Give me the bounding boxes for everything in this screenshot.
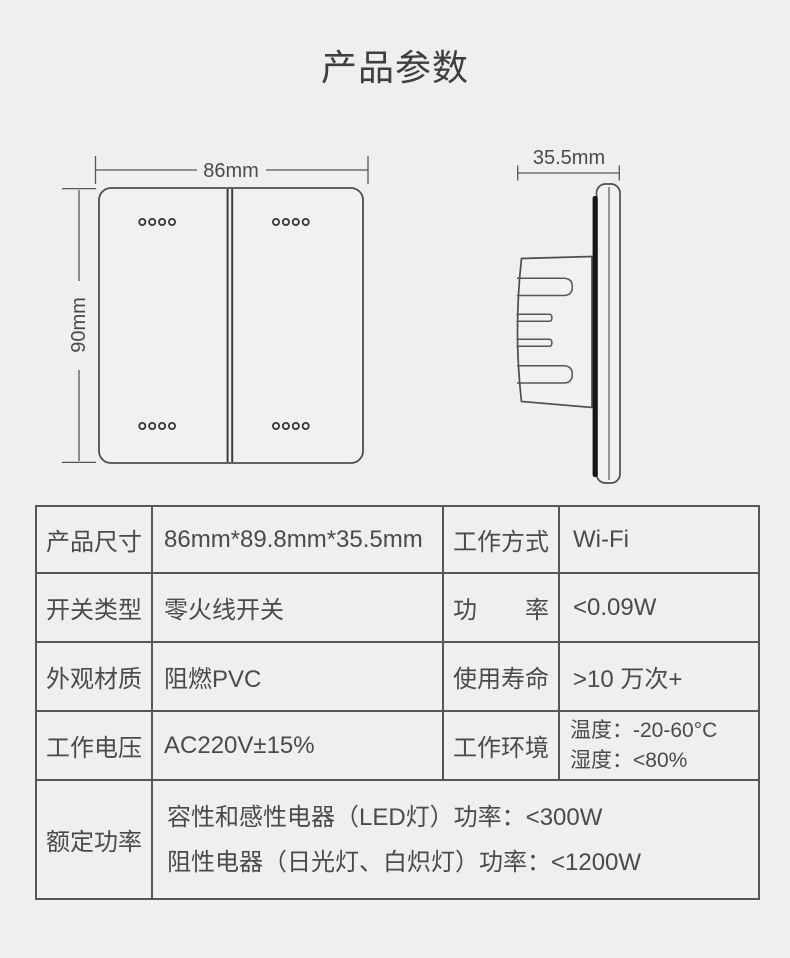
spec-value-material: 阻燃PVC (153, 643, 444, 712)
spec-value-lifespan: >10 万次+ (560, 643, 758, 712)
height-dimension-label: 90mm (68, 297, 90, 353)
spec-label-power: 功率 (444, 574, 560, 643)
front-view-diagram: 86mm 90mm (62, 156, 368, 463)
spec-label-lifespan: 使用寿命 (444, 643, 560, 712)
spec-label-product-size: 产品尺寸 (37, 507, 153, 574)
spec-value-voltage: AC220V±15% (153, 712, 444, 781)
spec-table: 产品尺寸 86mm*89.8mm*35.5mm 工作方式 Wi-Fi 开关类型 … (35, 505, 760, 900)
switch-dimension-diagram: 86mm 90mm (0, 0, 790, 500)
glass-panel-edge (593, 196, 598, 477)
spec-label-environment: 工作环境 (444, 712, 560, 781)
spec-value-environment: 温度：-20-60°C 湿度：<80% (560, 712, 758, 781)
width-dimension-label: 86mm (203, 160, 259, 182)
spec-value-work-mode: Wi-Fi (560, 507, 758, 574)
spec-value-power: <0.09W (560, 574, 758, 643)
spec-value-switch-type: 零火线开关 (153, 574, 444, 643)
rated-power-resistive: 阻性电器（日光灯、白炽灯）功率：<1200W (153, 840, 641, 885)
depth-dimension-label: 35.5mm (533, 147, 605, 169)
spec-value-product-size: 86mm*89.8mm*35.5mm (153, 507, 444, 574)
spec-label-work-mode: 工作方式 (444, 507, 560, 574)
spec-value-rated-power: 容性和感性电器（LED灯）功率：<300W 阻性电器（日光灯、白炽灯）功率：<1… (153, 781, 758, 898)
product-spec-sheet: 产品参数 (0, 0, 790, 958)
environment-humidity: 湿度：<80% (560, 746, 687, 776)
spec-label-voltage: 工作电压 (37, 712, 153, 781)
side-view-diagram: 35.5mm (517, 147, 621, 483)
environment-temperature: 温度：-20-60°C (560, 716, 717, 746)
spec-label-material: 外观材质 (37, 643, 153, 712)
spec-label-switch-type: 开关类型 (37, 574, 153, 643)
spec-label-rated-power: 额定功率 (37, 781, 153, 898)
rated-power-capacitive: 容性和感性电器（LED灯）功率：<300W (153, 795, 602, 840)
